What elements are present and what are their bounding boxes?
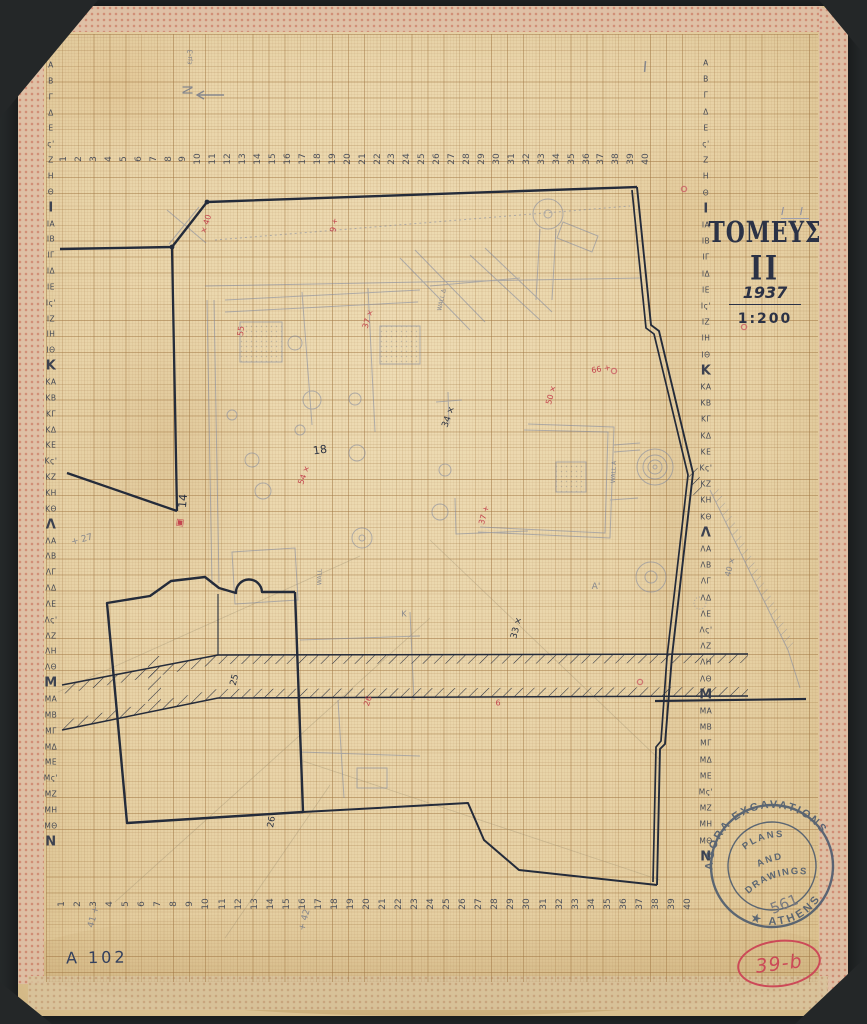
grid-number-top: 10 [193,153,203,164]
grid-letter-right: Θ [703,188,709,197]
grid-letter-right: ΛΕ [701,609,712,618]
grid-number-bottom: 38 [651,898,661,909]
grid-number-top: 24 [402,153,412,164]
scanned-drawing-page: 1234567891011121314151617181920212223242… [0,0,867,1024]
grid-number-bottom: 39 [667,898,677,909]
grid-letter-left: ΜΘ [44,821,57,830]
grid-letter-left: Ζ [48,156,54,165]
grid-number-top: 16 [283,153,293,164]
scan-corner-bottomleft [0,982,52,1024]
grid-number-top: 34 [552,153,562,164]
grid-number-top: 7 [149,156,159,162]
grid-number-top: 39 [626,153,636,164]
grid-number-bottom: 35 [603,898,613,909]
grid-letter-left: Κ [46,359,57,374]
annotation: WALL A [610,461,618,484]
edge-tape-right [819,8,848,1008]
grid-number-top: 13 [238,153,248,164]
grid-number-bottom: 14 [266,898,276,909]
grid-letter-left: ΙΘ [46,346,55,355]
grid-letter-right: ΜΘ [699,836,712,845]
grid-number-bottom: 22 [394,898,404,909]
grid-letter-left: ς' [47,140,54,149]
grid-letter-left: ΙΑ [47,219,55,228]
grid-number-top: 23 [387,153,397,164]
grid-letter-right: Ν [700,849,711,864]
grid-letter-right: Μς' [699,788,713,797]
grid-letter-left: Μ [44,676,57,691]
grid-letter-right: ΚΑ [700,383,711,392]
grid-letter-right: ΜΑ [700,707,713,716]
grid-number-bottom: 1 [57,901,67,907]
grid-letter-left: ΛΕ [46,599,57,608]
annotation: 55 [236,326,246,337]
grid-number-bottom: 19 [346,898,356,909]
grid-number-bottom: 24 [426,898,436,909]
grid-letter-left: ΙΓ [47,251,54,260]
grid-number-top: 15 [268,153,278,164]
grid-letter-right: ΙΗ [702,334,711,343]
annotation: A' [592,582,601,592]
grid-letter-right: ΚΕ [701,447,712,456]
grid-letter-right: Κ [701,363,712,378]
grid-number-bottom: 8 [169,901,179,907]
grid-number-top: 25 [417,153,427,164]
grid-number-top: 33 [537,153,547,164]
grid-number-bottom: 29 [506,898,516,909]
grid-number-top: 2 [74,156,84,162]
grid-number-top: 27 [447,153,457,164]
grid-number-top: 19 [328,153,338,164]
annotation: 26 [266,815,278,828]
grid-letter-right: Α [703,59,709,68]
grid-letter-right: ΛΘ [700,674,712,683]
grid-number-bottom: 33 [571,898,581,909]
grid-number-top: 31 [507,153,517,164]
grid-letter-left: ΜΑ [45,695,58,704]
grid-letter-right: ς' [702,140,709,149]
grid-letter-left: Κς' [45,457,58,466]
grid-number-top: 3 [89,156,99,162]
title-block: Ι Ι ΤΟΜΕΥΣ ΙΙ 1937 1:200 [690,200,840,327]
grid-letter-right: Η [703,172,709,181]
grid-number-bottom: 20 [362,898,372,909]
grid-letter-right: ΛΒ [700,561,711,570]
grid-letter-left: ΙΔ [47,267,55,276]
grid-number-top: 11 [208,153,218,164]
grid-number-bottom: 31 [539,898,549,909]
grid-letter-left: ΚΗ [45,488,57,497]
grid-letter-right: ΛΑ [700,545,711,554]
grid-letter-right: ΚΖ [700,480,711,489]
grid-number-top: 32 [522,153,532,164]
grid-number-top: 29 [477,153,487,164]
grid-letter-right: ΜΗ [699,820,712,829]
grid-letter-left: ΙΕ [47,282,55,291]
grid-letter-right: ΜΓ [700,739,712,748]
grid-number-top: 26 [432,153,442,164]
grid-number-top: 6 [134,156,144,162]
grid-letter-right: Λς' [699,626,712,635]
grid-letter-right: Δ [703,107,709,116]
sheet-title: ΤΟΜΕΥΣ ΙΙ [694,216,837,289]
grid-letter-right: ΜΒ [700,723,713,732]
grid-letter-left: ΚΕ [46,441,57,450]
grid-letter-left: ΛΑ [45,536,56,545]
grid-number-bottom: 17 [314,898,324,909]
grid-number-bottom: 27 [474,898,484,909]
grid-number-bottom: 6 [137,901,147,907]
grid-letter-right: Μ [699,687,712,702]
grid-letter-right: ΚΗ [700,496,712,505]
grid-letter-left: ΛΒ [45,552,56,561]
grid-number-top: 18 [313,153,323,164]
grid-letter-left: ΚΑ [45,378,56,387]
grid-letter-left: ΙΒ [47,235,55,244]
annotation: K [401,610,406,619]
grid-letter-right: ΛΓ [701,577,711,586]
grid-letter-left: Ν [45,834,56,849]
grid-number-bottom: 21 [378,898,388,909]
sector-numeral: ΙΙ [750,250,780,289]
grid-number-bottom: 10 [201,898,211,909]
annotation: ▣ [175,517,185,528]
grid-letter-left: ΛΖ [45,631,56,640]
grid-letter-right: ΚΘ [700,512,712,521]
grid-letter-left: Θ [48,187,54,196]
grid-number-top: 35 [567,153,577,164]
grid-number-top: 38 [611,153,621,164]
grid-letter-right: ΜΔ [700,755,713,764]
grid-number-top: 22 [373,153,383,164]
grid-letter-left: ΛΗ [45,647,57,656]
grid-number-top: 36 [582,153,592,164]
grid-number-top: 28 [462,153,472,164]
grid-number-bottom: 37 [635,898,645,909]
grid-number-top: 12 [223,153,233,164]
drawing-number: A 102 [66,947,128,967]
grid-letter-right: ΙΘ [701,350,710,359]
grid-letter-left: ΙΖ [47,314,55,323]
annotation: N [179,85,194,95]
annotation: εμ-3 [185,49,194,65]
grid-letter-left: Μς' [44,774,58,783]
grid-number-bottom: 32 [555,898,565,909]
grid-letter-left: ΚΓ [46,409,56,418]
grid-letter-left: ΚΘ [45,504,57,513]
grid-number-bottom: 36 [619,898,629,909]
grid-number-bottom: 25 [442,898,452,909]
grid-letter-right: ΛΗ [700,658,712,667]
grid-letter-left: ΙΗ [47,330,56,339]
grid-letter-right: ΚΔ [700,431,711,440]
grid-letter-left: ΛΔ [45,584,56,593]
grid-number-top: 20 [343,153,353,164]
grid-letter-left: ΜΓ [45,726,57,735]
grid-number-top: 8 [164,156,174,162]
grid-letter-right: Ζ [703,156,709,165]
grid-number-bottom: 23 [410,898,420,909]
annotation: 6 [495,699,500,708]
grid-number-top: 37 [596,153,606,164]
grid-letter-left: ΛΘ [45,663,57,672]
edge-tape-left [18,26,44,984]
grid-letter-right: Β [703,75,709,84]
grid-letter-right: Λ [701,525,712,540]
grid-letter-right: ΚΓ [701,415,711,424]
grid-number-bottom: 26 [458,898,468,909]
grid-letter-right: Γ [704,91,709,100]
grid-number-bottom: 18 [330,898,340,909]
grid-number-bottom: 11 [218,898,228,909]
grid-letter-right: ΜΖ [700,804,713,813]
map-scale: 1:200 [690,311,840,327]
grid-number-top: 9 [178,156,188,162]
grid-number-top: 4 [104,156,114,162]
grid-number-top: 17 [298,153,308,164]
grid-letter-left: ΜΗ [44,805,57,814]
grid-letter-left: ΜΕ [45,758,57,767]
grid-letter-right: ΛΔ [700,593,711,602]
grid-letter-left: Ι [48,200,53,215]
grid-number-bottom: 4 [105,901,115,907]
grid-number-bottom: 7 [153,901,163,907]
grid-number-top: 1 [59,156,69,162]
grid-number-bottom: 13 [250,898,260,909]
scan-corner-bottomright [795,956,867,1024]
grid-letter-left: Ε [48,124,53,133]
grid-letter-left: ΚΖ [45,473,56,482]
grid-letter-right: Ε [703,123,708,132]
grid-number-top: 40 [641,153,651,164]
grid-letter-left: ΚΒ [45,393,56,402]
grid-letter-left: ΜΒ [45,710,58,719]
grid-number-bottom: 30 [522,898,532,909]
grid-letter-left: Λς' [44,615,57,624]
grid-letter-right: Κς' [700,464,713,473]
grid-number-bottom: 28 [490,898,500,909]
scan-corner-topright [819,0,867,58]
grid-letter-left: ΚΔ [45,425,56,434]
scan-corner-topleft [0,0,98,118]
grid-number-bottom: 15 [282,898,292,909]
grid-letter-left: Η [48,171,54,180]
grid-letter-right: ΚΒ [700,399,711,408]
grid-letter-right: ΜΕ [700,771,712,780]
grid-number-bottom: 34 [587,898,597,909]
grid-number-top: 14 [253,153,263,164]
annotation: 14 [176,493,190,508]
annotation: 18 [312,443,328,458]
grid-number-bottom: 2 [73,901,83,907]
grid-number-bottom: 12 [234,898,244,909]
edge-tape-top [30,6,822,32]
grid-letter-left: Λ [46,517,57,532]
grid-letter-left: ΜΔ [45,742,58,751]
grid-letter-right: ΛΖ [700,642,711,651]
grid-number-top: 5 [119,156,129,162]
grid-number-bottom: 9 [185,901,195,907]
grid-number-top: 21 [358,153,368,164]
grid-letter-left: Ις' [46,298,56,307]
grid-letter-left: ΜΖ [45,790,58,799]
grid-letter-left: ΛΓ [46,568,56,577]
grid-number-top: 30 [492,153,502,164]
grid-number-bottom: 40 [683,898,693,909]
annotation: WALL [316,569,324,586]
grid-number-bottom: 5 [121,901,131,907]
